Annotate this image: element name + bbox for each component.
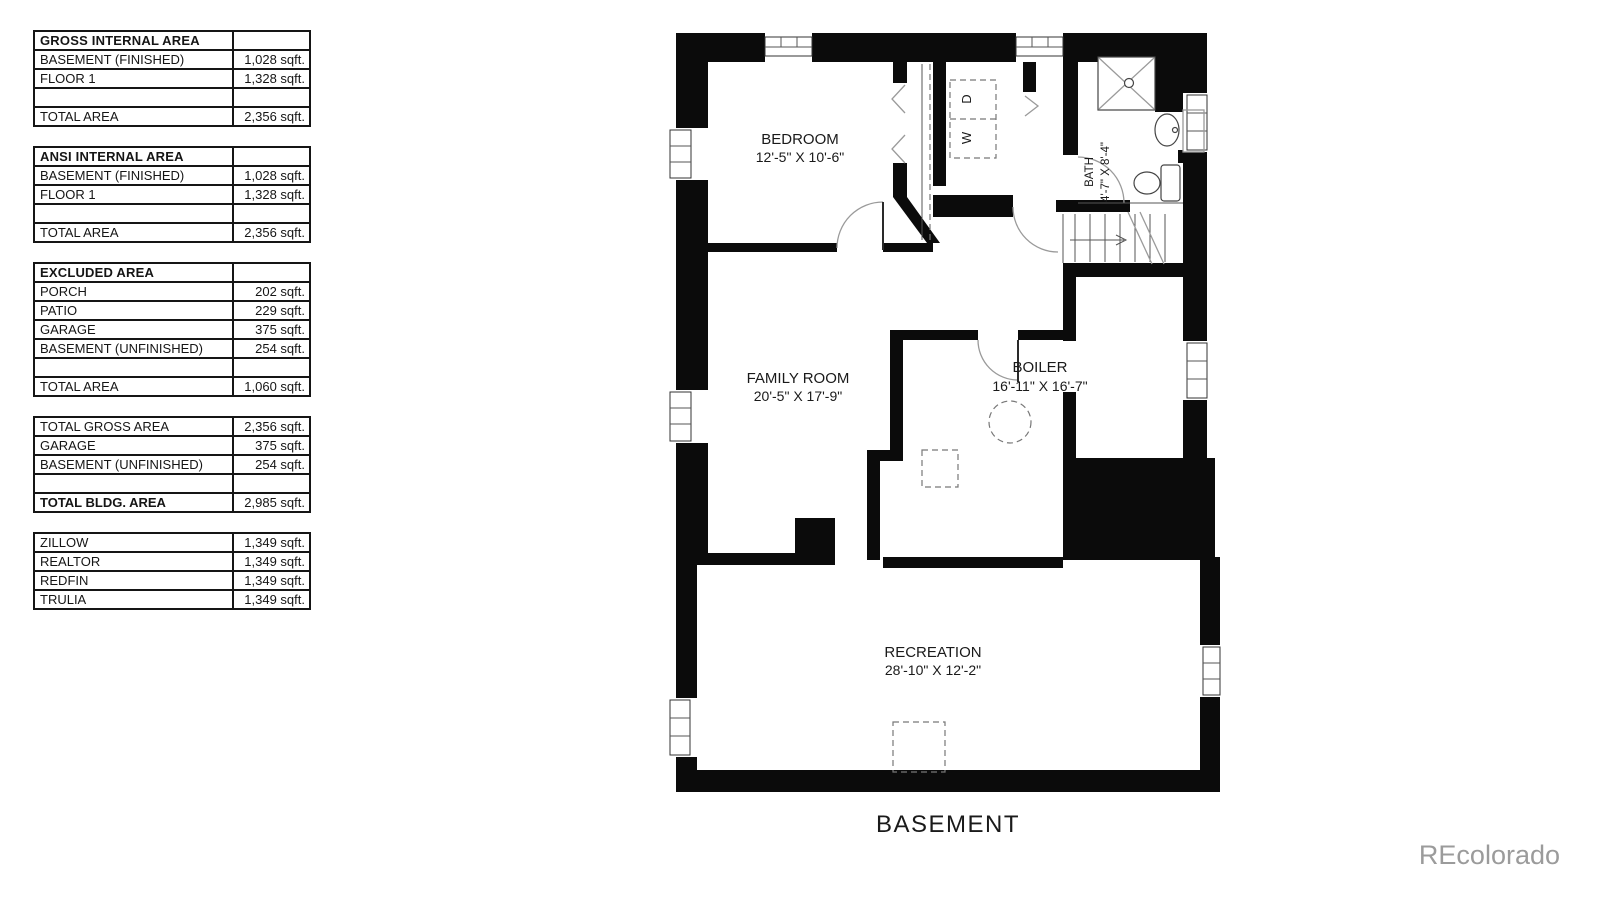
row-value: 2,356 sqft. [233,417,310,436]
row-label: PATIO [34,301,233,320]
family-room-dims: 20'-5" X 17'-9" [754,388,842,404]
table-row: GROSS INTERNAL AREA [34,31,310,50]
row-value: 375 sqft. [233,320,310,339]
row-value: 1,349 sqft. [233,571,310,590]
table-listing-sites: ZILLOW 1,349 sqft. REALTOR 1,349 sqft. R… [33,532,311,610]
bath-label: BATH [1084,157,1096,187]
table-building-area-summary: TOTAL GROSS AREA 2,356 sqft. GARAGE 375 … [33,416,311,513]
dryer-label: D [959,94,974,103]
row-value [233,147,310,166]
row-label: TOTAL AREA [34,223,233,242]
row-value: 1,060 sqft. [233,377,310,396]
row-value: 2,356 sqft. [233,223,310,242]
window-left-recreation [670,698,697,757]
furnace [922,450,958,487]
row-label: FLOOR 1 [34,69,233,88]
recreation-label: RECREATION [884,644,981,661]
row-value: 2,356 sqft. [233,107,310,126]
table-row: TRULIA 1,349 sqft. [34,590,310,609]
row-label: BASEMENT (FINISHED) [34,50,233,69]
table-row: TOTAL AREA 1,060 sqft. [34,377,310,396]
window-left-bedroom [670,128,708,180]
table-row: BASEMENT (FINISHED) 1,028 sqft. [34,166,310,185]
table-row [34,474,310,493]
staircase [1063,212,1165,264]
floorplan-page: GROSS INTERNAL AREA BASEMENT (FINISHED) … [0,0,1600,899]
window-right-recreation [1200,645,1220,697]
window-top-bedroom [765,33,812,62]
table-ansi-internal-area: ANSI INTERNAL AREA BASEMENT (FINISHED) 1… [33,146,311,243]
area-tables: GROSS INTERNAL AREA BASEMENT (FINISHED) … [33,30,299,629]
washer-label: W [959,131,974,144]
support-post [893,722,945,772]
table-header: EXCLUDED AREA [34,263,233,282]
boiler-label: BOILER [1012,359,1067,376]
recolorado-watermark: REcolorado [1385,840,1560,871]
row-label: TOTAL BLDG. AREA [34,493,233,512]
bedroom-dims: 12'-5" X 10'-6" [756,149,844,165]
row-label [34,474,233,493]
row-label: GARAGE [34,320,233,339]
row-value: 229 sqft. [233,301,310,320]
row-label: REDFIN [34,571,233,590]
row-label: BASEMENT (UNFINISHED) [34,339,233,358]
bath-dims: 4'-7" X 8'-4" [1100,142,1112,202]
window-left-family [670,390,708,443]
table-row: FLOOR 1 1,328 sqft. [34,69,310,88]
table-row: ANSI INTERNAL AREA [34,147,310,166]
row-value: 1,028 sqft. [233,166,310,185]
row-value: 254 sqft. [233,455,310,474]
row-value: 1,349 sqft. [233,590,310,609]
toilet [1134,165,1180,201]
row-value [233,31,310,50]
row-label: FLOOR 1 [34,185,233,204]
boiler-dims: 16'-11" X 16'-7" [992,378,1087,394]
table-excluded-area: EXCLUDED AREA PORCH 202 sqft. PATIO 229 … [33,262,311,397]
table-header: GROSS INTERNAL AREA [34,31,233,50]
table-header: ANSI INTERNAL AREA [34,147,233,166]
window-right-storage [1183,341,1207,400]
row-value [233,263,310,282]
floor-title: BASEMENT [876,811,1020,838]
table-row: TOTAL AREA 2,356 sqft. [34,107,310,126]
row-value [233,474,310,493]
row-value [233,204,310,223]
table-row: FLOOR 1 1,328 sqft. [34,185,310,204]
shower [1098,57,1155,110]
table-row: TOTAL GROSS AREA 2,356 sqft. [34,417,310,436]
row-value: 1,328 sqft. [233,185,310,204]
table-row: PORCH 202 sqft. [34,282,310,301]
window-top-hall [1016,33,1063,62]
table-row: ZILLOW 1,349 sqft. [34,533,310,552]
row-value [233,88,310,107]
washer-dryer-unit [950,80,996,158]
row-label: ZILLOW [34,533,233,552]
doors [837,64,1183,382]
table-row: BASEMENT (UNFINISHED) 254 sqft. [34,339,310,358]
row-value: 1,349 sqft. [233,533,310,552]
table-row: GARAGE 375 sqft. [34,436,310,455]
table-row [34,204,310,223]
row-value: 202 sqft. [233,282,310,301]
bedroom-door [837,202,883,250]
laundry-door [1025,96,1038,116]
row-value: 1,349 sqft. [233,552,310,571]
row-label: TOTAL AREA [34,377,233,396]
boiler-tank [989,401,1031,443]
table-row: TOTAL AREA 2,356 sqft. [34,223,310,242]
sliding-door [922,64,930,240]
stairs-door [1013,207,1058,252]
bedroom-label: BEDROOM [761,131,839,148]
row-label [34,88,233,107]
walls [676,33,1220,792]
row-label [34,204,233,223]
row-value: 254 sqft. [233,339,310,358]
row-label: BASEMENT (UNFINISHED) [34,455,233,474]
table-gross-internal-area: GROSS INTERNAL AREA BASEMENT (FINISHED) … [33,30,311,127]
table-row: BASEMENT (UNFINISHED) 254 sqft. [34,455,310,474]
recreation-dims: 28'-10" X 12'-2" [885,662,981,678]
table-row: EXCLUDED AREA [34,263,310,282]
row-label: GARAGE [34,436,233,455]
table-row: REDFIN 1,349 sqft. [34,571,310,590]
row-label: TOTAL GROSS AREA [34,417,233,436]
closet-bifold-doors [892,85,905,163]
table-row [34,358,310,377]
table-row: REALTOR 1,349 sqft. [34,552,310,571]
table-row: GARAGE 375 sqft. [34,320,310,339]
table-row [34,88,310,107]
row-value: 2,985 sqft. [233,493,310,512]
table-row: TOTAL BLDG. AREA 2,985 sqft. [34,493,310,512]
table-row: PATIO 229 sqft. [34,301,310,320]
row-label: TOTAL AREA [34,107,233,126]
row-label [34,358,233,377]
row-value [233,358,310,377]
floor-plan: BEDROOM 12'-5" X 10'-6" FAMILY ROOM 20'-… [630,10,1250,890]
row-value: 375 sqft. [233,436,310,455]
row-label: TRULIA [34,590,233,609]
row-value: 1,328 sqft. [233,69,310,88]
row-label: PORCH [34,282,233,301]
row-label: BASEMENT (FINISHED) [34,166,233,185]
table-row: BASEMENT (FINISHED) 1,028 sqft. [34,50,310,69]
family-room-label: FAMILY ROOM [747,370,850,387]
row-value: 1,028 sqft. [233,50,310,69]
row-label: REALTOR [34,552,233,571]
